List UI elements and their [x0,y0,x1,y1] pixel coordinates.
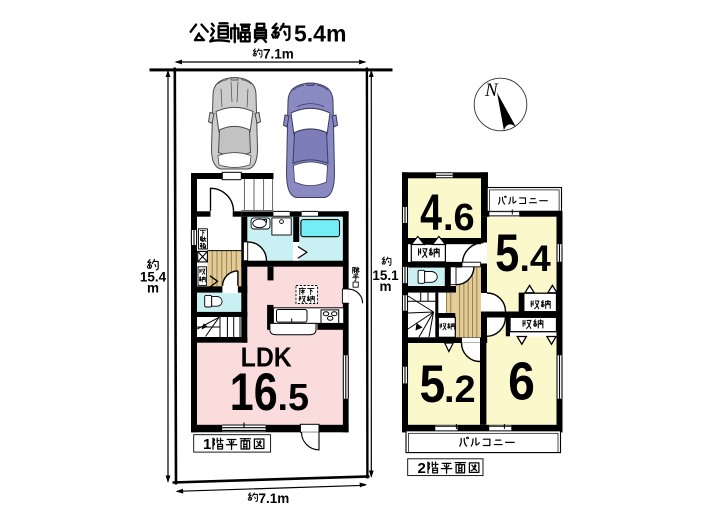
svg-text:16: 16 [230,364,278,422]
svg-text:2: 2 [418,460,426,477]
svg-text:5.4m: 5.4m [294,21,346,47]
svg-text:5: 5 [420,355,446,413]
svg-text:m: m [147,281,159,296]
svg-text:5: 5 [495,224,519,283]
svg-text:7.1m: 7.1m [259,491,290,506]
svg-text:.2: .2 [444,369,476,411]
svg-text:7.1m: 7.1m [263,46,294,61]
svg-text:N: N [484,80,499,101]
svg-text:.6: .6 [443,197,475,239]
svg-text:.5: .5 [278,377,310,419]
svg-text:6: 6 [508,351,535,411]
svg-text:1: 1 [203,436,211,453]
svg-text:4: 4 [420,183,442,240]
svg-text:m: m [379,279,391,294]
svg-text:.4: .4 [520,237,551,279]
